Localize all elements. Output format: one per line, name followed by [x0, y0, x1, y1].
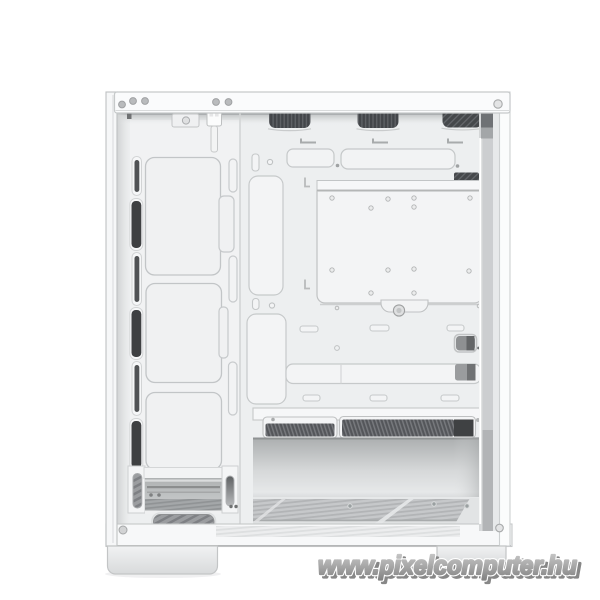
svg-text:www.pixelcomputer.hu: www.pixelcomputer.hu [318, 550, 577, 580]
